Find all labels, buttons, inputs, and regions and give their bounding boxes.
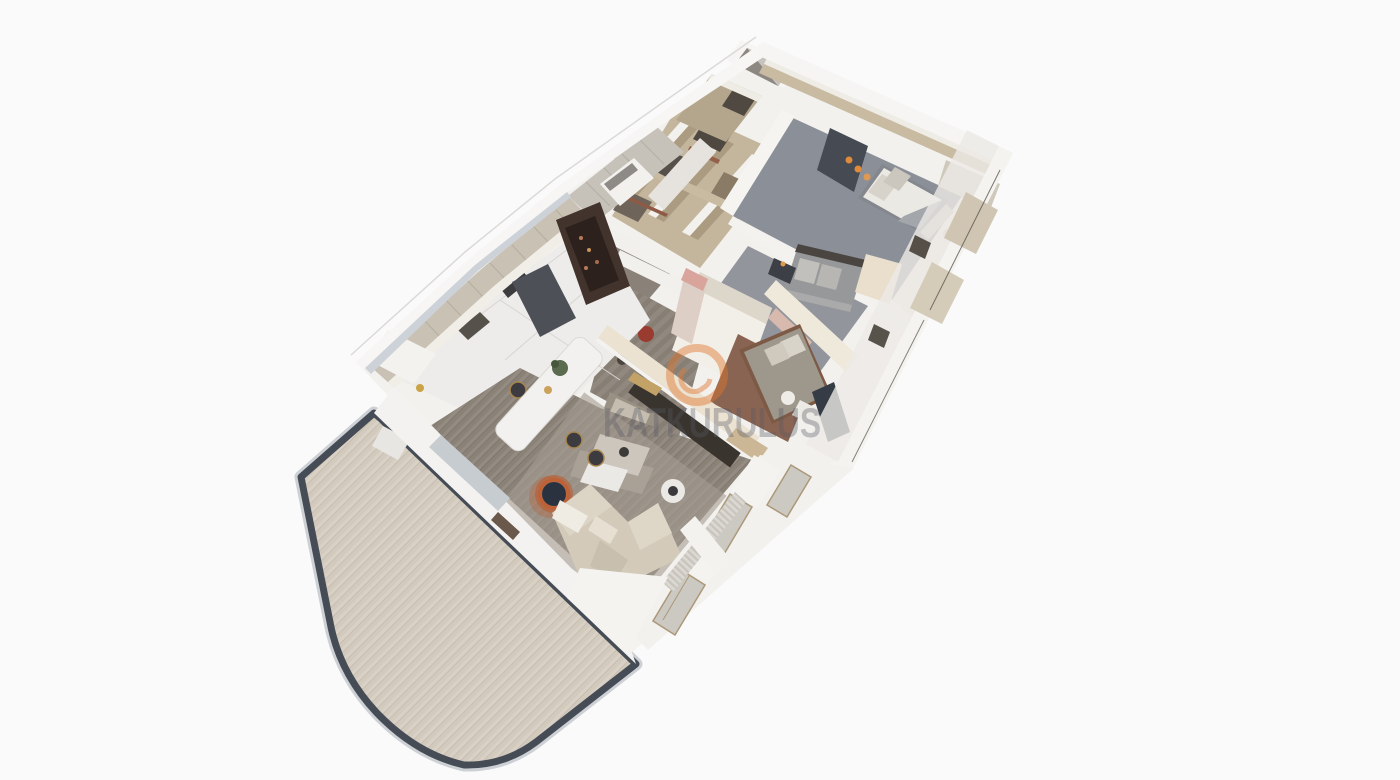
svg-text:KATKURULUS: KATKURULUS bbox=[603, 399, 821, 446]
